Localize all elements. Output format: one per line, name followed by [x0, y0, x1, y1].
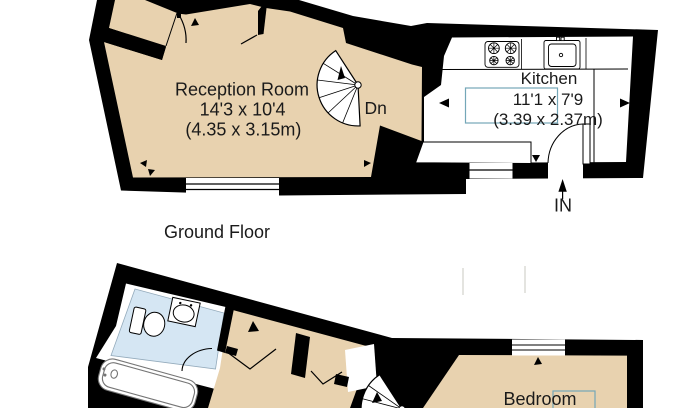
svg-text:Bedroom: Bedroom — [503, 389, 576, 408]
svg-text:(4.35 x 3.15m): (4.35 x 3.15m) — [185, 120, 301, 140]
svg-text:14'3 x 10'4: 14'3 x 10'4 — [200, 100, 286, 120]
svg-text:(3.39 x 2.37m): (3.39 x 2.37m) — [493, 110, 603, 129]
svg-text:Ground Floor: Ground Floor — [164, 222, 270, 242]
svg-text:11'1 x 7'9: 11'1 x 7'9 — [513, 90, 583, 109]
svg-text:Dn: Dn — [365, 98, 387, 118]
svg-text:IN: IN — [554, 196, 572, 216]
svg-text:Kitchen: Kitchen — [521, 69, 578, 88]
svg-text:Reception Room: Reception Room — [175, 79, 309, 99]
